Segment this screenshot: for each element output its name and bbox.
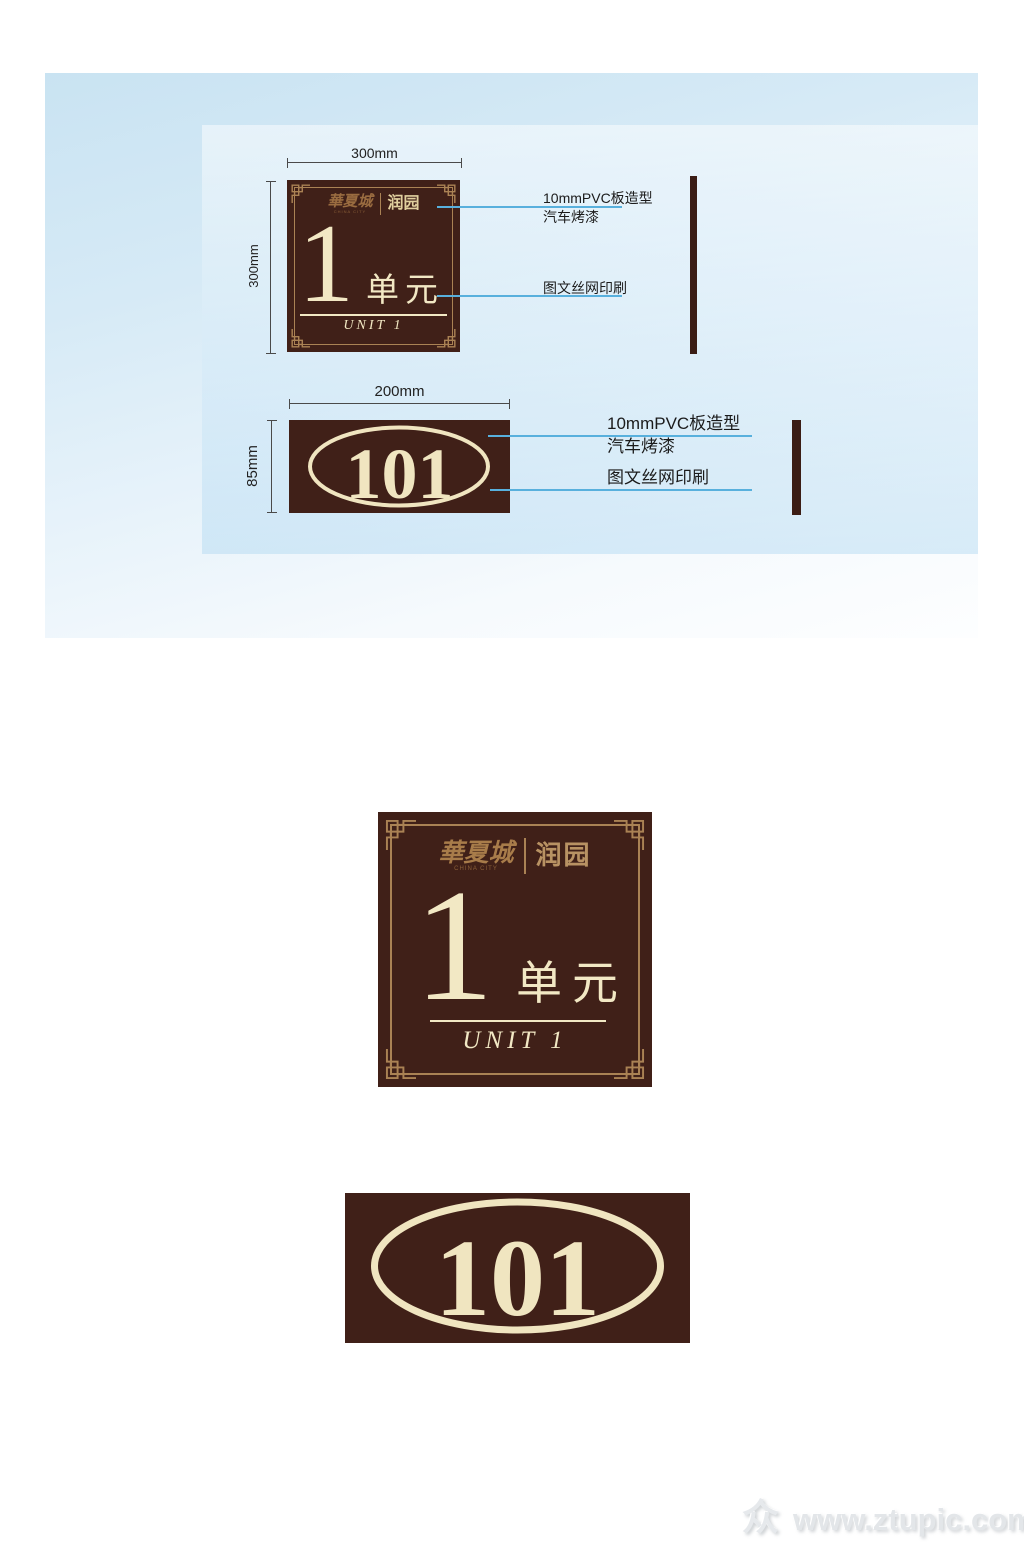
- room-number: 101: [289, 433, 510, 516]
- watermark-site-name: 众图网: [742, 1487, 779, 1542]
- spec-panel-background: [45, 73, 978, 638]
- room-sign-spec-view: 101: [289, 420, 510, 513]
- unit-label-en: UNIT 1: [287, 318, 460, 334]
- unit-label-en: UNIT 1: [378, 1027, 652, 1055]
- room-number: 101: [345, 1215, 690, 1342]
- estate-name: 润园: [536, 843, 592, 869]
- room-print-note: 图文丝网印刷: [607, 466, 709, 489]
- watermark-site-url: www.ztupic.com: [793, 1502, 1024, 1538]
- unit-number-row: 1 单元: [298, 218, 454, 310]
- note-line: 汽车烤漆: [607, 435, 740, 458]
- room-drawing-height-dimension-line: [271, 420, 272, 513]
- unit-print-note: 图文丝网印刷: [543, 279, 627, 298]
- unit-sign-spec-view: 華夏城 CHINA CITY 润园 1 单元 UNIT 1: [287, 180, 460, 352]
- watermark: 众图网 www.ztupic.com: [742, 1487, 1024, 1542]
- unit-drawing-height-dimension-line: [270, 181, 271, 354]
- unit-drawing-width-label: 300mm: [287, 145, 462, 161]
- design-sheet: 300mm 300mm 華夏城 CHIN: [0, 0, 1024, 1542]
- unit-sign-side-profile: [690, 176, 697, 354]
- sign-divider-rule: [300, 314, 447, 316]
- sign-divider-rule: [430, 1020, 606, 1022]
- note-line: 10mmPVC板造型: [543, 189, 653, 208]
- logo-divider: [380, 193, 381, 215]
- room-drawing-width-label: 200mm: [289, 383, 510, 400]
- room-drawing-height-label: 85mm: [244, 441, 260, 491]
- note-line: 汽车烤漆: [543, 208, 653, 227]
- room-drawing-width-dimension-line: [289, 403, 510, 404]
- unit-drawing-height-label: 300mm: [246, 236, 262, 296]
- leader-line: [490, 489, 752, 491]
- unit-number-row: 1 单元: [414, 882, 632, 1008]
- unit-material-note: 10mmPVC板造型 汽车烤漆: [543, 189, 653, 227]
- unit-sign-render: 華夏城 CHINA CITY 润园 1 单元 UNIT 1: [378, 812, 652, 1087]
- room-sign-side-profile: [792, 420, 801, 515]
- unit-number: 1: [298, 218, 354, 310]
- unit-number: 1: [414, 882, 494, 1008]
- room-material-note: 10mmPVC板造型 汽车烤漆: [607, 412, 740, 458]
- note-line: 10mmPVC板造型: [607, 412, 740, 435]
- estate-name: 润园: [388, 196, 420, 212]
- logo-divider: [524, 838, 526, 874]
- unit-drawing-width-dimension-line: [287, 162, 462, 163]
- room-sign-render: 101: [345, 1193, 690, 1343]
